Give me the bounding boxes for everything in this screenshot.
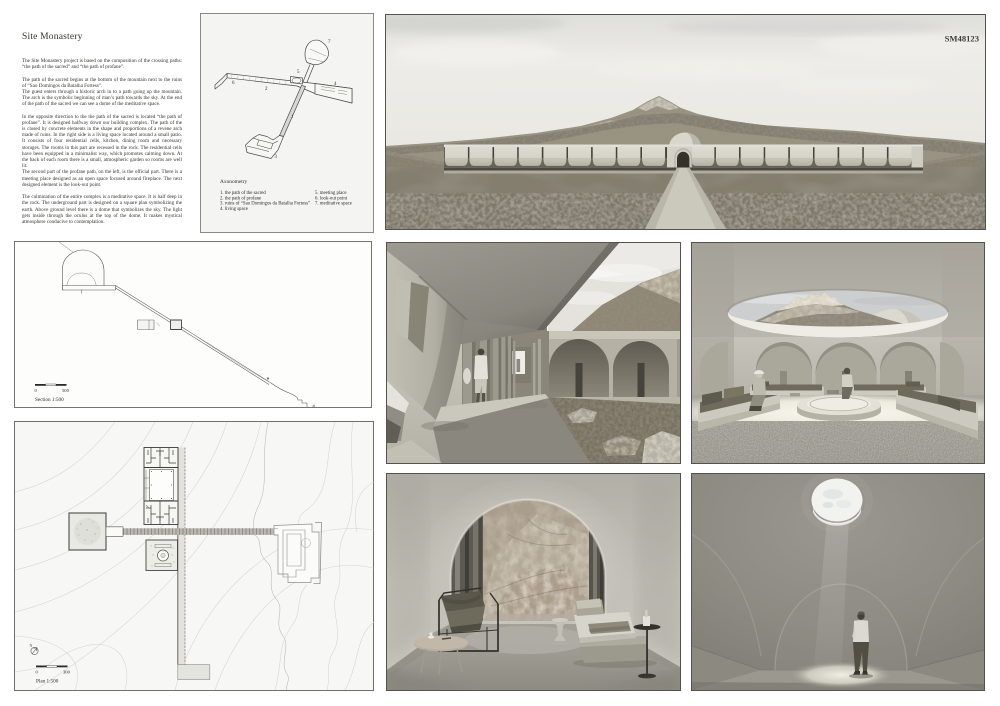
svg-text:Axonometry: Axonometry [220,179,248,185]
svg-text:300: 300 [63,670,71,675]
svg-text:3. ruins of “Sao Domingos da B: 3. ruins of “Sao Domingos da Batalha For… [220,201,310,207]
svg-text:1. the path of the sacred: 1. the path of the sacred [220,191,266,196]
svg-text:3: 3 [275,155,278,160]
svg-text:N: N [30,643,33,648]
svg-text:2: 2 [265,87,268,92]
svg-text:7: 7 [328,40,331,45]
svg-text:6: 6 [232,81,235,86]
svg-text:7. meditative space: 7. meditative space [315,202,352,207]
svg-text:SM48123: SM48123 [945,34,979,44]
svg-text:2. the path of profane: 2. the path of profane [220,196,261,201]
svg-text:0: 0 [35,388,38,393]
svg-text:Plan 1:500: Plan 1:500 [36,679,59,685]
svg-text:0: 0 [36,670,39,675]
svg-text:5. meeting place: 5. meeting place [315,191,347,196]
svg-text:500: 500 [62,388,70,393]
svg-text:Section 1:500: Section 1:500 [35,397,64,403]
svg-text:5: 5 [297,70,300,75]
svg-text:4. living space: 4. living space [220,207,248,212]
svg-text:1: 1 [291,115,294,120]
svg-text:6. look-out point: 6. look-out point [315,196,348,201]
